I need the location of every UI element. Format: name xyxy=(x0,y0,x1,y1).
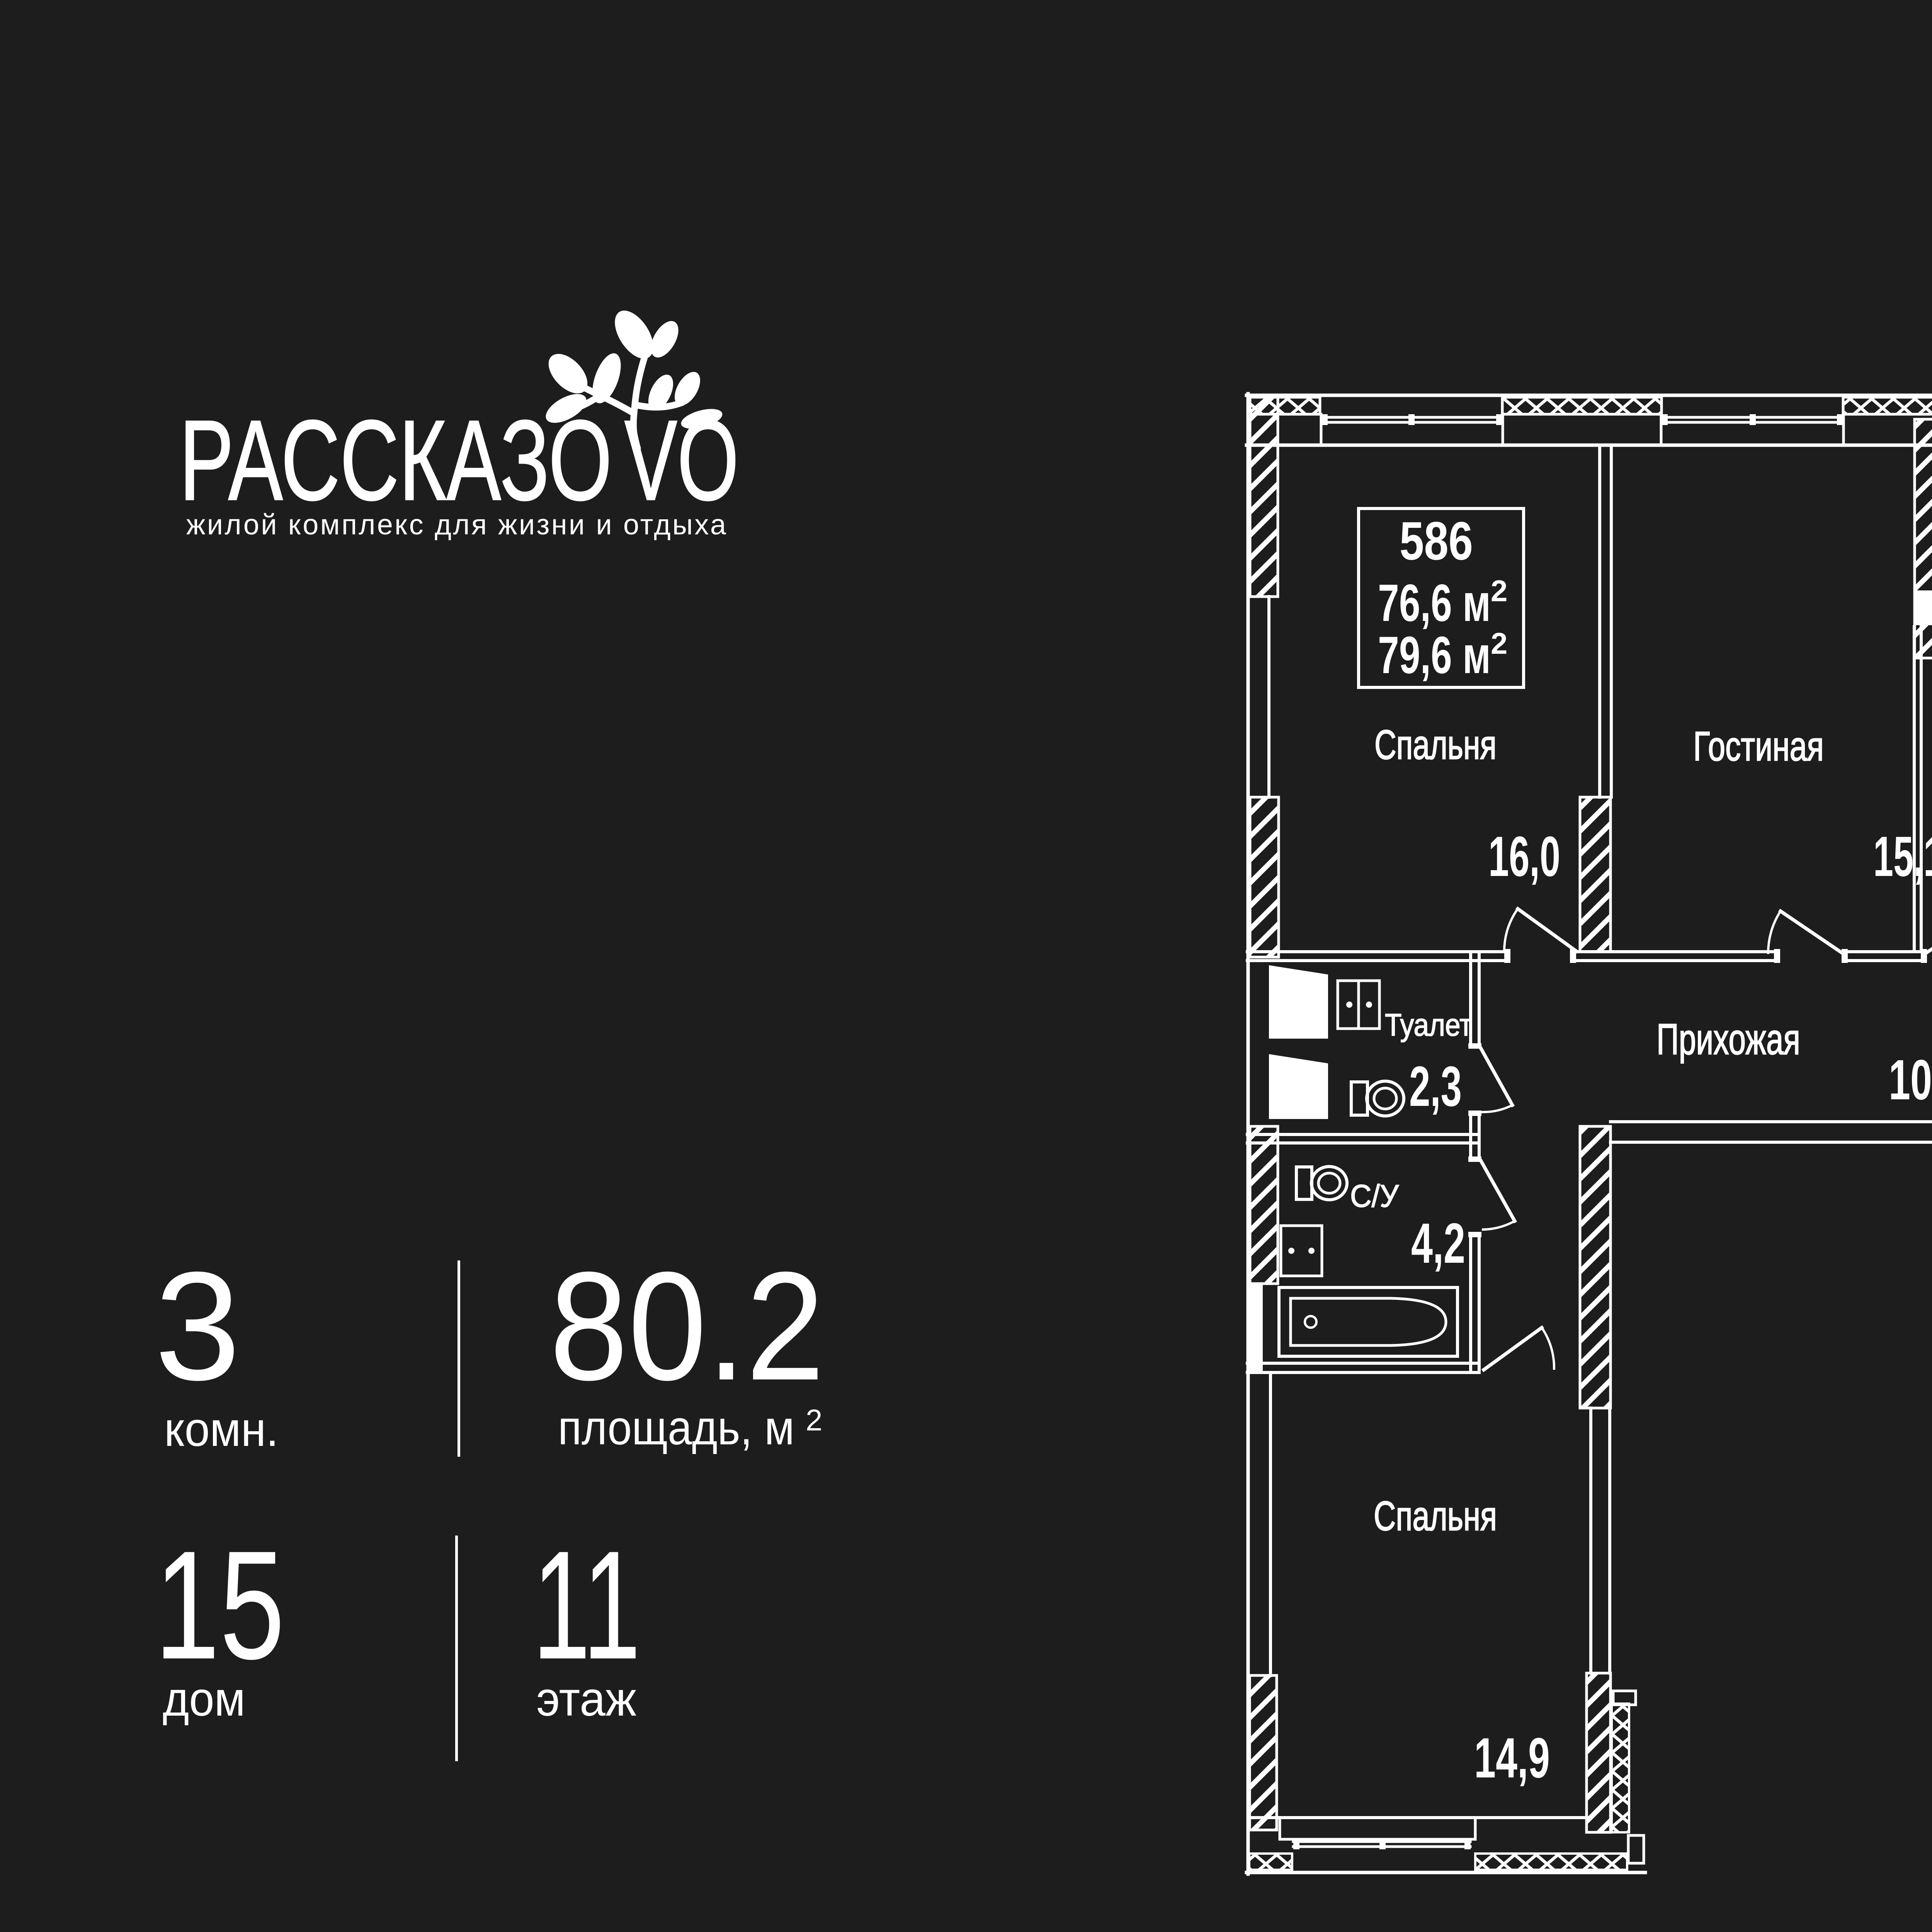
svg-text:VO: VO xyxy=(624,396,739,524)
svg-text:15: 15 xyxy=(155,1519,285,1691)
svg-text:жилой комплекс для жизни и отд: жилой комплекс для жизни и отдыха xyxy=(186,509,726,541)
svg-text:79,6 м: 79,6 м xyxy=(1378,626,1491,684)
svg-text:площадь, м: площадь, м xyxy=(558,1401,794,1455)
svg-text:дом: дом xyxy=(163,1672,245,1726)
svg-text:Спальня: Спальня xyxy=(1374,721,1497,768)
svg-text:2: 2 xyxy=(1491,626,1507,660)
svg-text:4,2: 4,2 xyxy=(1411,1212,1465,1275)
svg-text:16,0: 16,0 xyxy=(1488,825,1560,888)
svg-text:2: 2 xyxy=(806,1403,822,1437)
svg-text:2,3: 2,3 xyxy=(1409,1055,1462,1118)
svg-text:Гостиная: Гостиная xyxy=(1693,723,1824,769)
svg-text:РАССКАЗО: РАССКАЗО xyxy=(179,396,612,524)
svg-text:80.2: 80.2 xyxy=(549,1240,825,1412)
svg-text:3: 3 xyxy=(155,1240,240,1412)
svg-text:586: 586 xyxy=(1400,510,1473,571)
svg-text:14,9: 14,9 xyxy=(1474,1726,1550,1790)
svg-text:этаж: этаж xyxy=(536,1672,636,1726)
svg-text:Прихожая: Прихожая xyxy=(1656,1015,1800,1063)
svg-text:С/У: С/У xyxy=(1350,1179,1399,1214)
svg-text:Туалет: Туалет xyxy=(1385,1008,1472,1043)
svg-text:2: 2 xyxy=(1491,574,1507,608)
svg-text:10,0: 10,0 xyxy=(1889,1048,1932,1112)
svg-text:11: 11 xyxy=(532,1519,641,1691)
svg-text:76,6 м: 76,6 м xyxy=(1378,573,1491,632)
svg-text:15,1: 15,1 xyxy=(1873,825,1932,888)
svg-text:Спальня: Спальня xyxy=(1374,1493,1497,1539)
svg-text:комн.: комн. xyxy=(164,1403,279,1456)
